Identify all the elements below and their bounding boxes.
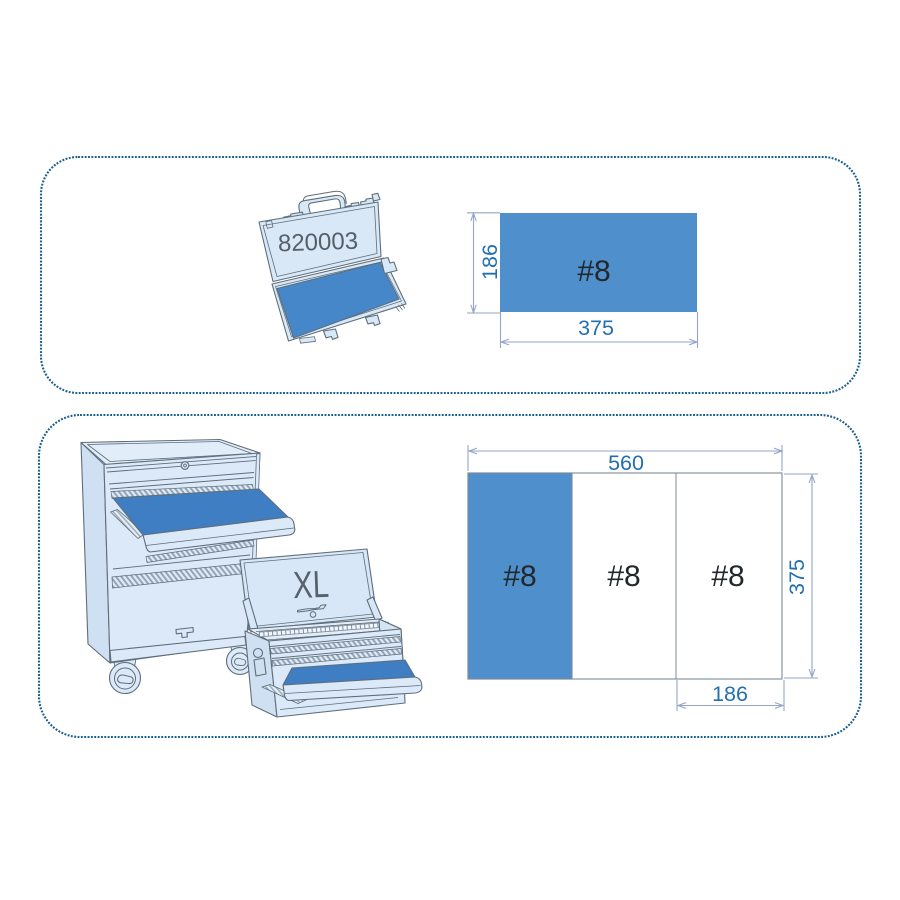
svg-text:#8: #8 <box>503 560 536 593</box>
svg-text:XL: XL <box>292 564 329 607</box>
svg-text:#8: #8 <box>711 560 744 593</box>
svg-text:186: 186 <box>712 682 748 706</box>
svg-text:#8: #8 <box>577 255 610 288</box>
svg-text:820003: 820003 <box>278 228 359 258</box>
svg-text:375: 375 <box>785 559 809 595</box>
svg-text:#8: #8 <box>607 560 640 593</box>
svg-text:186: 186 <box>478 244 502 280</box>
svg-text:560: 560 <box>608 451 644 475</box>
svg-text:375: 375 <box>578 316 614 340</box>
